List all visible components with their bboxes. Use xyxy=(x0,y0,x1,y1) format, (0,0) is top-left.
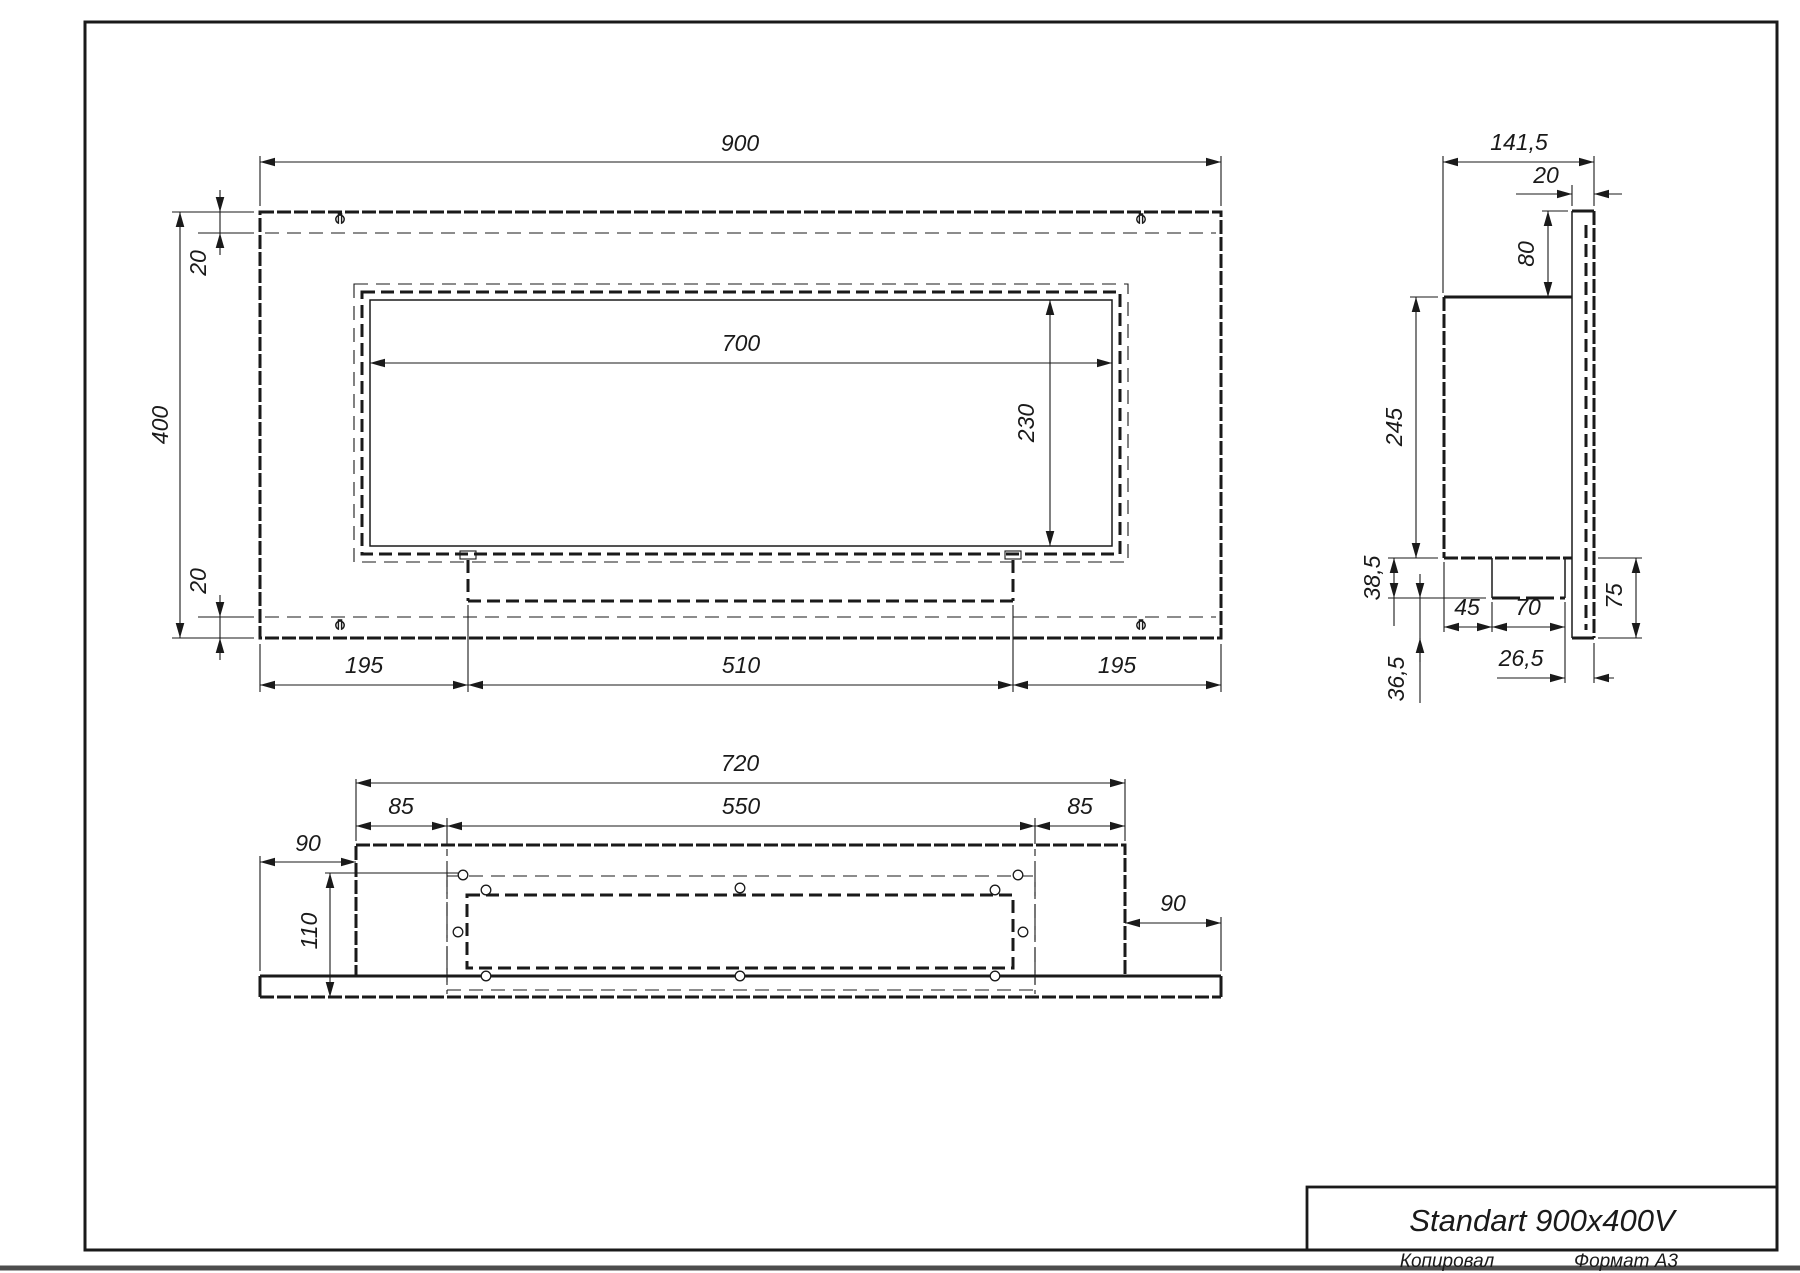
svg-text:38,5: 38,5 xyxy=(1359,555,1385,600)
front-outer-panel xyxy=(260,212,1221,638)
dim-side-tray-offset: 45 xyxy=(1444,562,1492,632)
drawing-title: Standart 900x400V xyxy=(1409,1203,1678,1238)
format-label: Формат А3 xyxy=(1574,1251,1678,1272)
mounting-hole xyxy=(458,870,468,880)
mounting-hole xyxy=(990,885,1000,895)
svg-text:90: 90 xyxy=(1160,890,1186,916)
svg-text:85: 85 xyxy=(1067,793,1093,819)
svg-text:900: 900 xyxy=(721,130,760,156)
keyhole-slot-icon xyxy=(1137,214,1145,223)
svg-text:510: 510 xyxy=(722,652,761,678)
dim-side-body-height: 245 xyxy=(1381,297,1438,558)
svg-text:195: 195 xyxy=(345,652,384,678)
svg-text:20: 20 xyxy=(185,250,211,277)
svg-text:550: 550 xyxy=(722,793,761,819)
svg-text:110: 110 xyxy=(296,912,322,949)
dim-front-opening-width: 700 xyxy=(370,330,1112,363)
svg-text:26,5: 26,5 xyxy=(1498,645,1544,671)
dim-front-overall-width: 900 xyxy=(260,130,1221,206)
dim-front-opening-height: 230 xyxy=(1013,300,1050,546)
svg-text:720: 720 xyxy=(721,750,760,776)
svg-text:20: 20 xyxy=(185,568,211,595)
svg-text:36,5: 36,5 xyxy=(1383,656,1409,701)
dim-side-front-gap: 26,5 xyxy=(1497,643,1614,683)
dim-top-wing-right: 90 xyxy=(1125,890,1221,971)
svg-text:20: 20 xyxy=(1532,162,1559,188)
svg-text:90: 90 xyxy=(295,830,321,856)
dim-side-flange-height: 80 xyxy=(1513,211,1568,297)
keyhole-slot-icon xyxy=(336,620,344,629)
dim-side-front-wall-height: 75 xyxy=(1598,558,1642,638)
front-view: 900 400 20 20 700 xyxy=(147,130,1221,692)
svg-text:700: 700 xyxy=(722,330,761,356)
svg-text:245: 245 xyxy=(1381,408,1407,448)
svg-text:230: 230 xyxy=(1013,404,1039,444)
dim-top-body-depth: 110 xyxy=(296,873,330,997)
svg-text:400: 400 xyxy=(147,406,173,445)
top-slot-hidden-thick xyxy=(467,895,1013,968)
top-body xyxy=(356,845,1125,976)
svg-text:85: 85 xyxy=(388,793,414,819)
dim-front-foot-chain: 195 510 195 xyxy=(260,605,1221,692)
copied-by-label: Копировал xyxy=(1400,1251,1495,1272)
svg-text:45: 45 xyxy=(1454,594,1480,620)
dim-top-slot-chain: 85 550 85 xyxy=(356,793,1125,826)
mounting-hole xyxy=(481,971,491,981)
keyhole-slot-icon xyxy=(1137,620,1145,629)
top-view: 720 85 550 85 90 90 110 xyxy=(260,750,1221,997)
side-view: 141,5 20 80 245 38,5 xyxy=(1359,129,1642,703)
svg-text:70: 70 xyxy=(1515,594,1541,620)
mounting-hole xyxy=(990,971,1000,981)
front-hidden-tray xyxy=(468,560,1013,601)
svg-text:195: 195 xyxy=(1098,652,1137,678)
mounting-hole xyxy=(735,883,745,893)
front-opening-hidden-thin xyxy=(354,284,1128,562)
title-block: Standart 900x400V Копировал Формат А3 xyxy=(1307,1187,1777,1272)
mounting-hole xyxy=(1013,870,1023,880)
dim-side-flange-depth: 20 xyxy=(1516,162,1622,206)
svg-text:141,5: 141,5 xyxy=(1490,129,1548,155)
mounting-hole xyxy=(481,885,491,895)
svg-text:80: 80 xyxy=(1513,241,1539,267)
sheet-frame xyxy=(85,22,1777,1250)
mounting-hole xyxy=(453,927,463,937)
mounting-hole xyxy=(1018,927,1028,937)
drawing-canvas: 900 400 20 20 700 xyxy=(0,0,1800,1273)
drawing-page: 900 400 20 20 700 xyxy=(0,0,1800,1273)
dim-front-bottom-inset: 20 xyxy=(185,568,254,660)
keyhole-slot-icon xyxy=(336,214,344,223)
mounting-hole xyxy=(735,971,745,981)
svg-text:75: 75 xyxy=(1601,583,1627,609)
dim-front-top-inset: 20 xyxy=(185,190,254,277)
dim-side-lower-drop: 36,5 xyxy=(1383,574,1420,703)
